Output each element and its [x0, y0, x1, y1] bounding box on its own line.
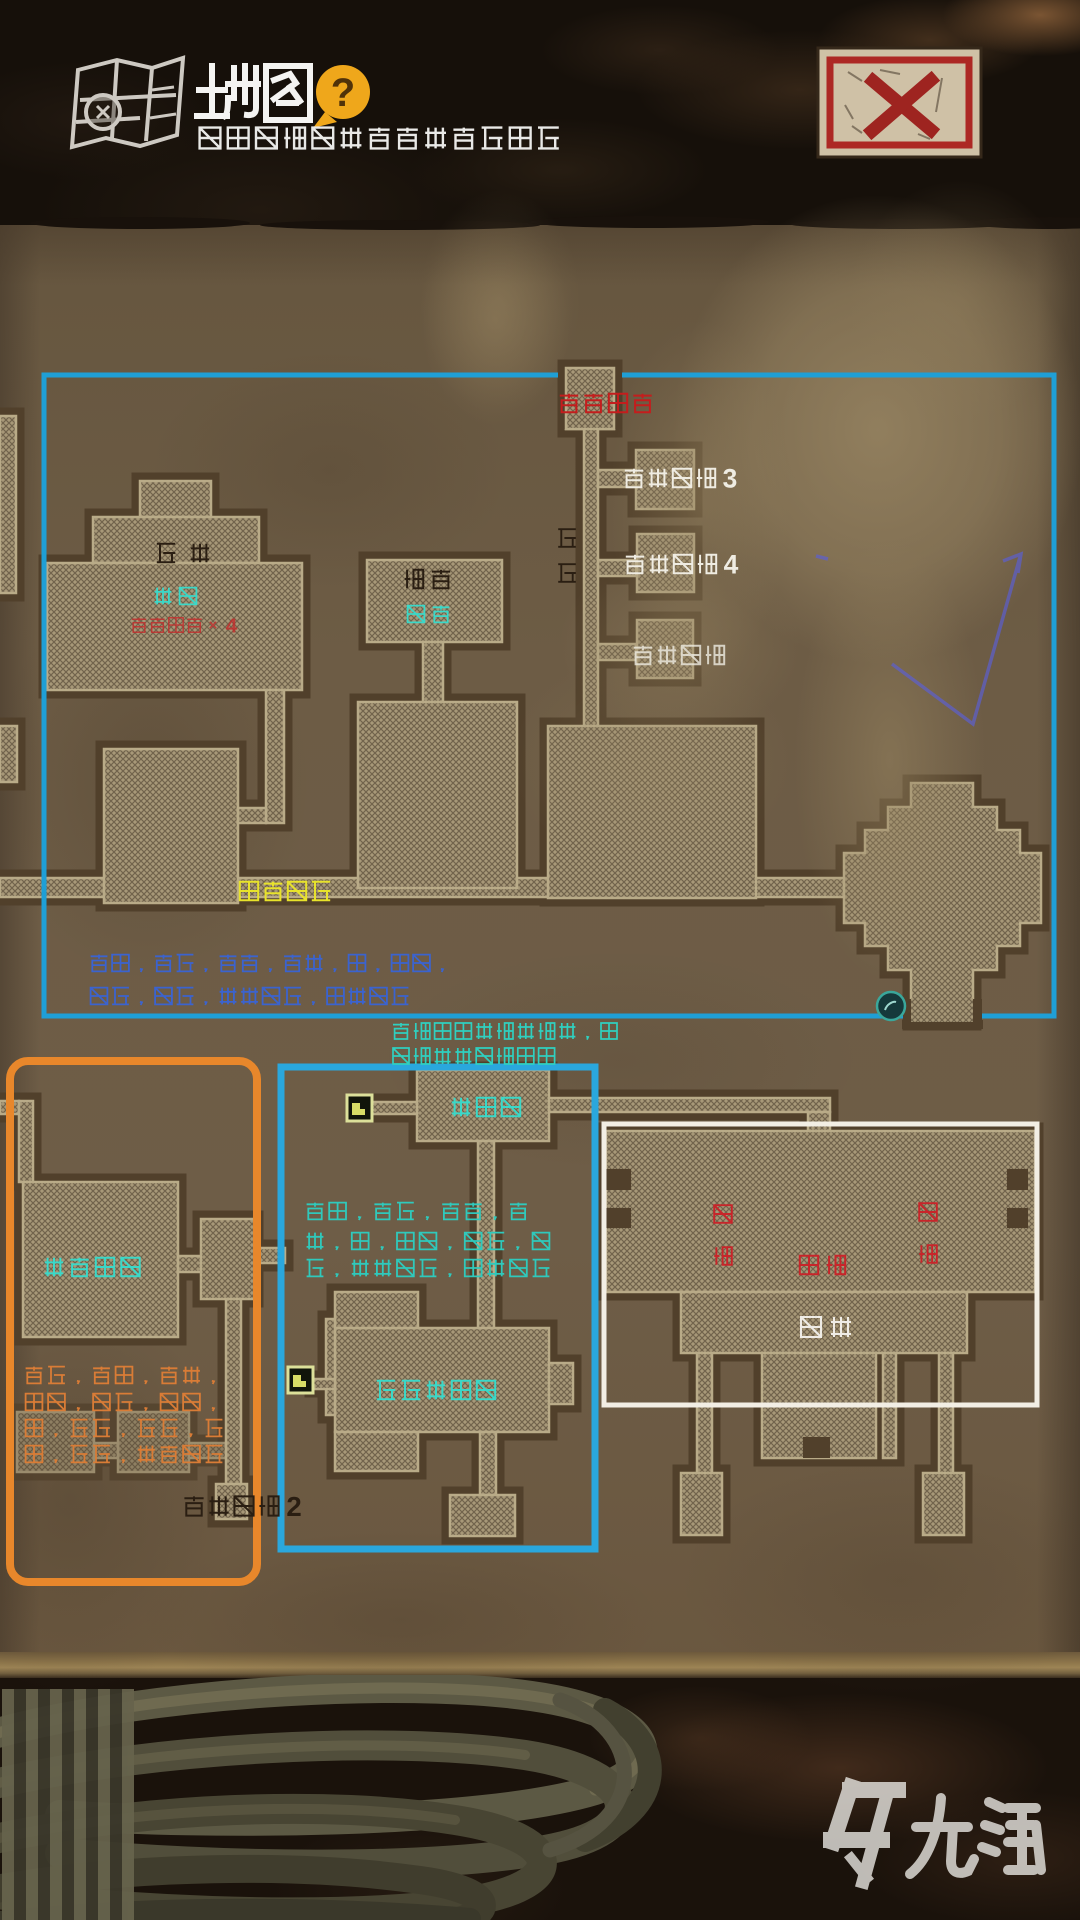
svg-text:?: ?: [331, 71, 355, 115]
svg-text:4: 4: [724, 550, 739, 580]
svg-text:4: 4: [226, 615, 238, 638]
svg-text:2: 2: [286, 1491, 301, 1522]
svg-text:3: 3: [723, 464, 738, 494]
